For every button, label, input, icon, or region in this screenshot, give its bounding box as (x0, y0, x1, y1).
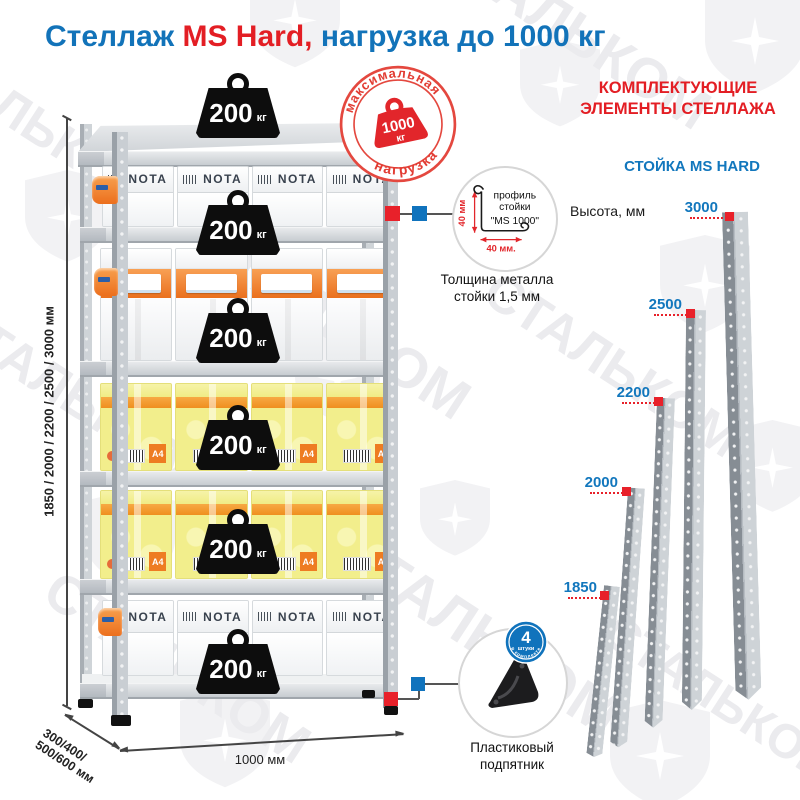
barcode-icon (333, 175, 348, 184)
callout-blue-square-profile (412, 206, 427, 221)
components-heading: КОМПЛЕКТУЮЩИЕ ЭЛЕМЕНТЫ СТЕЛЛАЖА (558, 78, 798, 121)
shelf-orange-tag (98, 608, 122, 636)
post-height-label-1850: 1850 (537, 579, 597, 596)
shelf-post-back-left (80, 124, 92, 700)
shelf-orange-tag (92, 176, 118, 204)
post-height-label-2000: 2000 (558, 474, 618, 491)
height-axis-label: Высота, мм (570, 203, 645, 219)
svg-text:стойки: стойки (499, 202, 531, 213)
barcode-icon (343, 449, 371, 463)
profile-detail-circle: 40 мм профиль стойки "MS 1000" 40 мм. (452, 166, 558, 272)
weight-200kg: 200кг (196, 524, 280, 574)
shelf-foot (362, 690, 375, 698)
leader-dots-2200 (622, 402, 655, 404)
svg-text:"MS 1000": "MS 1000" (491, 216, 540, 227)
box-brand-label: NOTA (128, 610, 167, 624)
title-part3: нагрузка до 1000 кг (312, 20, 605, 53)
callout-red-square-profile (385, 206, 400, 221)
title-part2: MS Hard, (182, 20, 312, 53)
profile-dim-horizontal: 40 мм. (486, 243, 515, 253)
weight-200kg: 200кг (196, 205, 280, 255)
post-height-label-3000: 3000 (658, 199, 718, 216)
barcode-icon (258, 612, 273, 621)
height-dimension-line (66, 118, 68, 706)
barcode-icon (258, 175, 273, 184)
leader-dots-3000 (690, 217, 727, 219)
leader-square-3000 (725, 212, 734, 221)
shelf-post-front-right (383, 138, 398, 708)
a4-label: A4 (300, 552, 317, 571)
leader-square-2200 (654, 397, 663, 406)
box-brand-label: NOTA (278, 172, 317, 186)
max-load-badge: максимальная нагрузка 1000 кг (327, 53, 469, 195)
weight-200kg: 200кг (196, 313, 280, 363)
leader-square-2500 (686, 309, 695, 318)
barcode-icon (183, 612, 198, 621)
infographic-stellazh-ms-hard: СТАЛЬКОМ СТАЛЬКОМ СТАЛЬКОМ СТАЛЬКОМ СТАЛ… (0, 0, 800, 800)
post-height-label-2200: 2200 (590, 384, 650, 401)
a4-label: A4 (149, 552, 166, 571)
post-height-label-2500: 2500 (622, 296, 682, 313)
paper-box-a4: A4 (100, 383, 172, 471)
profile-dim-vertical: 40 мм (457, 200, 467, 227)
shelf-orange-tag (94, 268, 118, 296)
page-title: Стеллаж MS Hard, нагрузка до 1000 кг (45, 20, 606, 54)
paper-box-a4: A4 (100, 490, 172, 579)
box-brand-label: NOTA (203, 610, 242, 624)
callout-line-foot-v (418, 690, 420, 699)
shelf-foot (384, 706, 398, 715)
callout-blue-square-foot (411, 677, 425, 691)
leader-dots-2000 (590, 492, 623, 494)
callout-line-foot-h (395, 698, 419, 700)
foot-caption: Пластиковый подпятник (432, 740, 592, 774)
leader-dots-2500 (654, 314, 687, 316)
box-brand-label: NOTA (278, 610, 317, 624)
height-options-label: 1850 / 2000 / 2200 / 2500 / 3000 мм (42, 262, 57, 562)
svg-text:штуки: штуки (518, 646, 535, 652)
weight-200kg: 200кг (196, 420, 280, 470)
weight-200kg: 200кг (196, 88, 280, 138)
box-brand-label: NOTA (128, 172, 167, 186)
width-label: 1000 мм (200, 752, 320, 767)
callout-line-foot-h2 (425, 683, 460, 685)
leader-dots-1850 (568, 597, 601, 599)
shelf-foot (78, 699, 93, 708)
box-brand-label: NOTA (203, 172, 242, 186)
paper-box-orange-lid (100, 248, 172, 361)
barcode-icon (333, 612, 348, 621)
leader-square-2000 (622, 487, 631, 496)
barcode-icon (343, 557, 371, 571)
quantity-badge: 4 штуки в комплекте (504, 620, 548, 669)
a4-label: A4 (300, 444, 317, 463)
profile-caption: Толщина металла стойки 1,5 мм (417, 272, 577, 306)
weight-200kg: 200кг (196, 644, 280, 694)
svg-text:профиль: профиль (494, 189, 537, 201)
barcode-icon (183, 175, 198, 184)
components-subheading: СТОЙКА MS HARD (592, 158, 792, 175)
shelf-foot (111, 715, 131, 726)
a4-label: A4 (149, 444, 166, 463)
title-part1: Стеллаж (45, 20, 182, 53)
leader-square-1850 (600, 591, 609, 600)
callout-red-square-foot (384, 692, 398, 706)
post-2500 (682, 310, 706, 710)
svg-text:4: 4 (521, 628, 531, 647)
